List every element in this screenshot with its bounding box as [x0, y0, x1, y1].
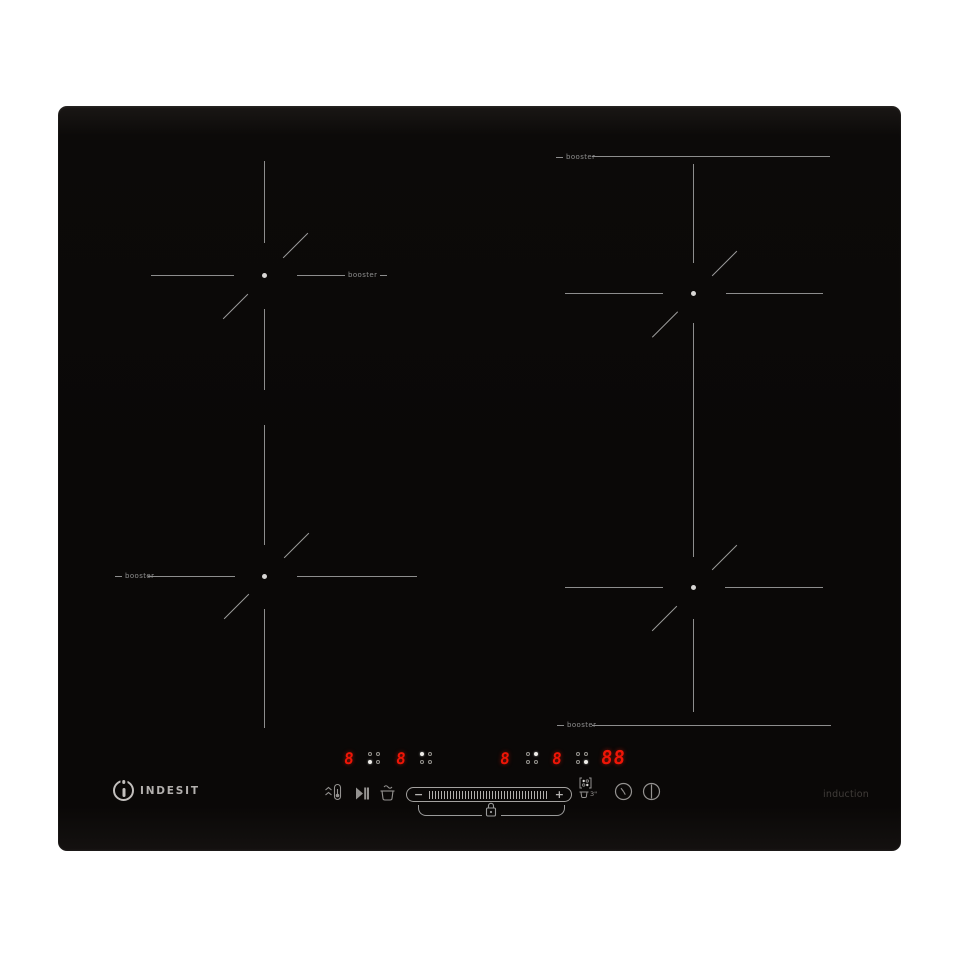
pan-detection-indicator: 3": [579, 777, 601, 798]
slider-ticks[interactable]: [429, 791, 549, 799]
zone-select-dots-1[interactable]: [368, 752, 381, 765]
slider-plus-button[interactable]: +: [555, 789, 564, 800]
booster-line: [592, 725, 831, 726]
melt-function-button[interactable]: [324, 783, 342, 803]
zone-line: [693, 619, 694, 712]
timer-clock-icon: [614, 782, 633, 801]
timer-button[interactable]: [614, 782, 633, 801]
power-slider[interactable]: − +: [406, 787, 572, 802]
small-pan-icon: [579, 790, 589, 798]
brand-logo-i-dot: [122, 780, 126, 784]
brand-logo-circle: [113, 780, 134, 801]
zone-select-dots-4[interactable]: [576, 752, 589, 765]
booster-dash: [557, 725, 564, 726]
zone-bottom-right-marking: booster: [58, 106, 901, 851]
zone-center-dot: [691, 585, 696, 590]
pan-min-size-label: 3": [590, 791, 597, 798]
pan-detection-icon: [579, 777, 592, 789]
zone-diagonal: [712, 545, 737, 570]
zone-line: [725, 587, 823, 588]
timer-display[interactable]: 88: [600, 750, 627, 766]
lock-bracket-left: [418, 805, 482, 816]
zone-select-dots-3[interactable]: [526, 752, 539, 765]
booster-label: booster: [557, 721, 596, 729]
zone-power-display-3[interactable]: 8: [499, 752, 510, 766]
zone-diagonal: [652, 606, 677, 631]
play-pause-icon: [356, 787, 369, 800]
pause-button[interactable]: [356, 787, 369, 800]
zone-power-display-1[interactable]: 8: [343, 752, 354, 766]
zone-select-dots-2[interactable]: [420, 752, 433, 765]
power-button[interactable]: [642, 782, 661, 801]
slider-minus-button[interactable]: −: [414, 789, 423, 800]
brand-logo-i-stem: [122, 788, 125, 797]
induction-hob-surface: booster booster booster: [58, 106, 901, 851]
power-icon: [642, 782, 661, 801]
brand-logo: INDESIT: [113, 780, 200, 801]
lock-button[interactable]: [485, 801, 497, 818]
melt-function-icon: [324, 783, 342, 803]
lock-icon: [485, 801, 497, 818]
boil-function-icon: [379, 784, 396, 801]
zone-power-display-2[interactable]: 8: [395, 752, 406, 766]
zone-power-display-4[interactable]: 8: [551, 752, 562, 766]
boil-function-button[interactable]: [379, 784, 396, 801]
induction-label: induction: [816, 789, 876, 800]
brand-wordmark: INDESIT: [140, 786, 200, 796]
zone-line: [565, 587, 663, 588]
lock-bracket-right: [501, 805, 565, 816]
